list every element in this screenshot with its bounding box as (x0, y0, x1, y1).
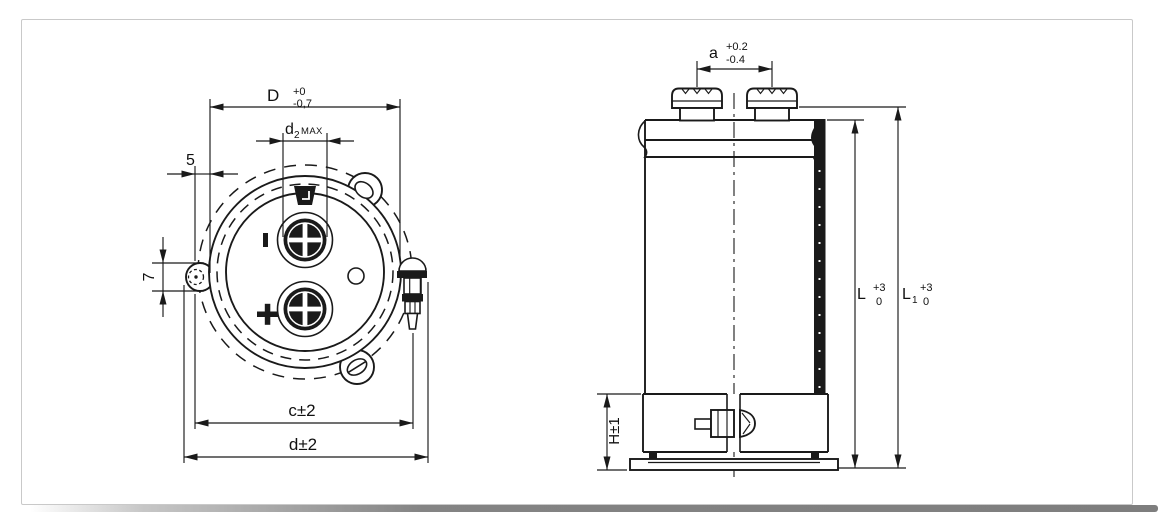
bottom-shadow-divider (30, 505, 1158, 512)
dimension-a: a +0.2 -0.4 (697, 37, 772, 87)
minus-polarity-mark (263, 233, 268, 247)
dim-label-7: 7 (141, 272, 158, 281)
can-body-side (638, 120, 825, 394)
mounting-clamp (630, 394, 838, 470)
positive-terminal (278, 282, 333, 337)
dim-label-d: d±2 (289, 435, 317, 454)
dim-label-d2: d 2 MAX (285, 121, 323, 142)
dimension-L: L +3 0 (827, 120, 890, 468)
dim-label-5: 5 (186, 152, 195, 169)
dim-label-L: L +3 0 (857, 278, 890, 308)
capacitor-dimension-drawing: D +0 -0,7 d 2 MAX (0, 0, 1158, 532)
vent-hole (348, 268, 364, 284)
dim-label-c: c±2 (288, 401, 315, 420)
dim-label-a: a +0.2 -0.4 (709, 37, 752, 66)
base-plate (630, 459, 838, 470)
dim-label-H: H±1 (606, 417, 623, 444)
dim-label-L1: L 1 +3 0 (902, 278, 937, 308)
dim-label-D: D +0 -0,7 (267, 82, 312, 110)
negative-terminal (278, 213, 333, 268)
terminal-screw-right (747, 89, 797, 121)
side-view: a +0.2 -0.4 L +3 0 (597, 37, 937, 477)
drawing-canvas: D +0 -0,7 d 2 MAX (0, 0, 1158, 532)
terminal-screw-left (672, 89, 722, 121)
top-view: D +0 -0,7 d 2 MAX (141, 82, 428, 463)
